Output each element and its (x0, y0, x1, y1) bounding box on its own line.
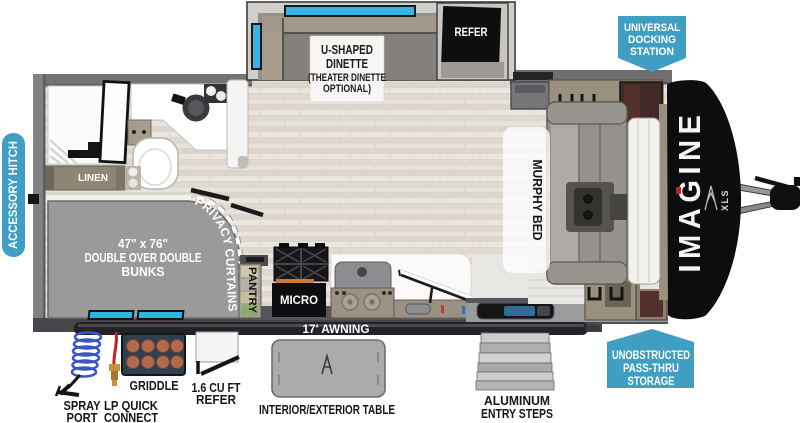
svg-text:MURPHY BED: MURPHY BED (530, 160, 545, 241)
svg-text:XLS: XLS (720, 189, 730, 211)
svg-text:DOUBLE OVER DOUBLE: DOUBLE OVER DOUBLE (85, 250, 202, 265)
svg-text:REFER: REFER (196, 392, 237, 407)
svg-text:U-SHAPED: U-SHAPED (321, 42, 373, 57)
svg-text:CONNECT: CONNECT (104, 410, 158, 423)
svg-text:47" x 76": 47" x 76" (118, 236, 168, 251)
svg-text:ENTRY STEPS: ENTRY STEPS (481, 406, 553, 421)
svg-text:REFER: REFER (455, 27, 489, 39)
svg-text:BUNKS: BUNKS (122, 264, 165, 279)
svg-text:GRIDDLE: GRIDDLE (130, 378, 179, 393)
svg-text:DOCKING: DOCKING (628, 34, 676, 46)
svg-text:STORAGE: STORAGE (628, 374, 675, 388)
svg-text:PANTRY: PANTRY (246, 267, 258, 314)
svg-text:UNIVERSAL: UNIVERSAL (624, 22, 680, 34)
svg-text:UNOBSTRUCTED: UNOBSTRUCTED (612, 348, 690, 362)
svg-text:LINEN: LINEN (78, 173, 108, 184)
svg-text:MICRO: MICRO (280, 295, 318, 307)
svg-text:PORT: PORT (67, 410, 98, 423)
svg-text:PASS-THRU: PASS-THRU (623, 361, 679, 375)
svg-text:STATION: STATION (630, 46, 674, 58)
svg-text:OPTIONAL): OPTIONAL) (323, 83, 371, 95)
svg-text:17' AWNING: 17' AWNING (303, 322, 370, 336)
svg-text:INTERIOR/EXTERIOR TABLE: INTERIOR/EXTERIOR TABLE (259, 402, 395, 417)
svg-text:DINETTE: DINETTE (326, 56, 368, 71)
svg-text:ACCESSORY HITCH: ACCESSORY HITCH (8, 141, 20, 249)
